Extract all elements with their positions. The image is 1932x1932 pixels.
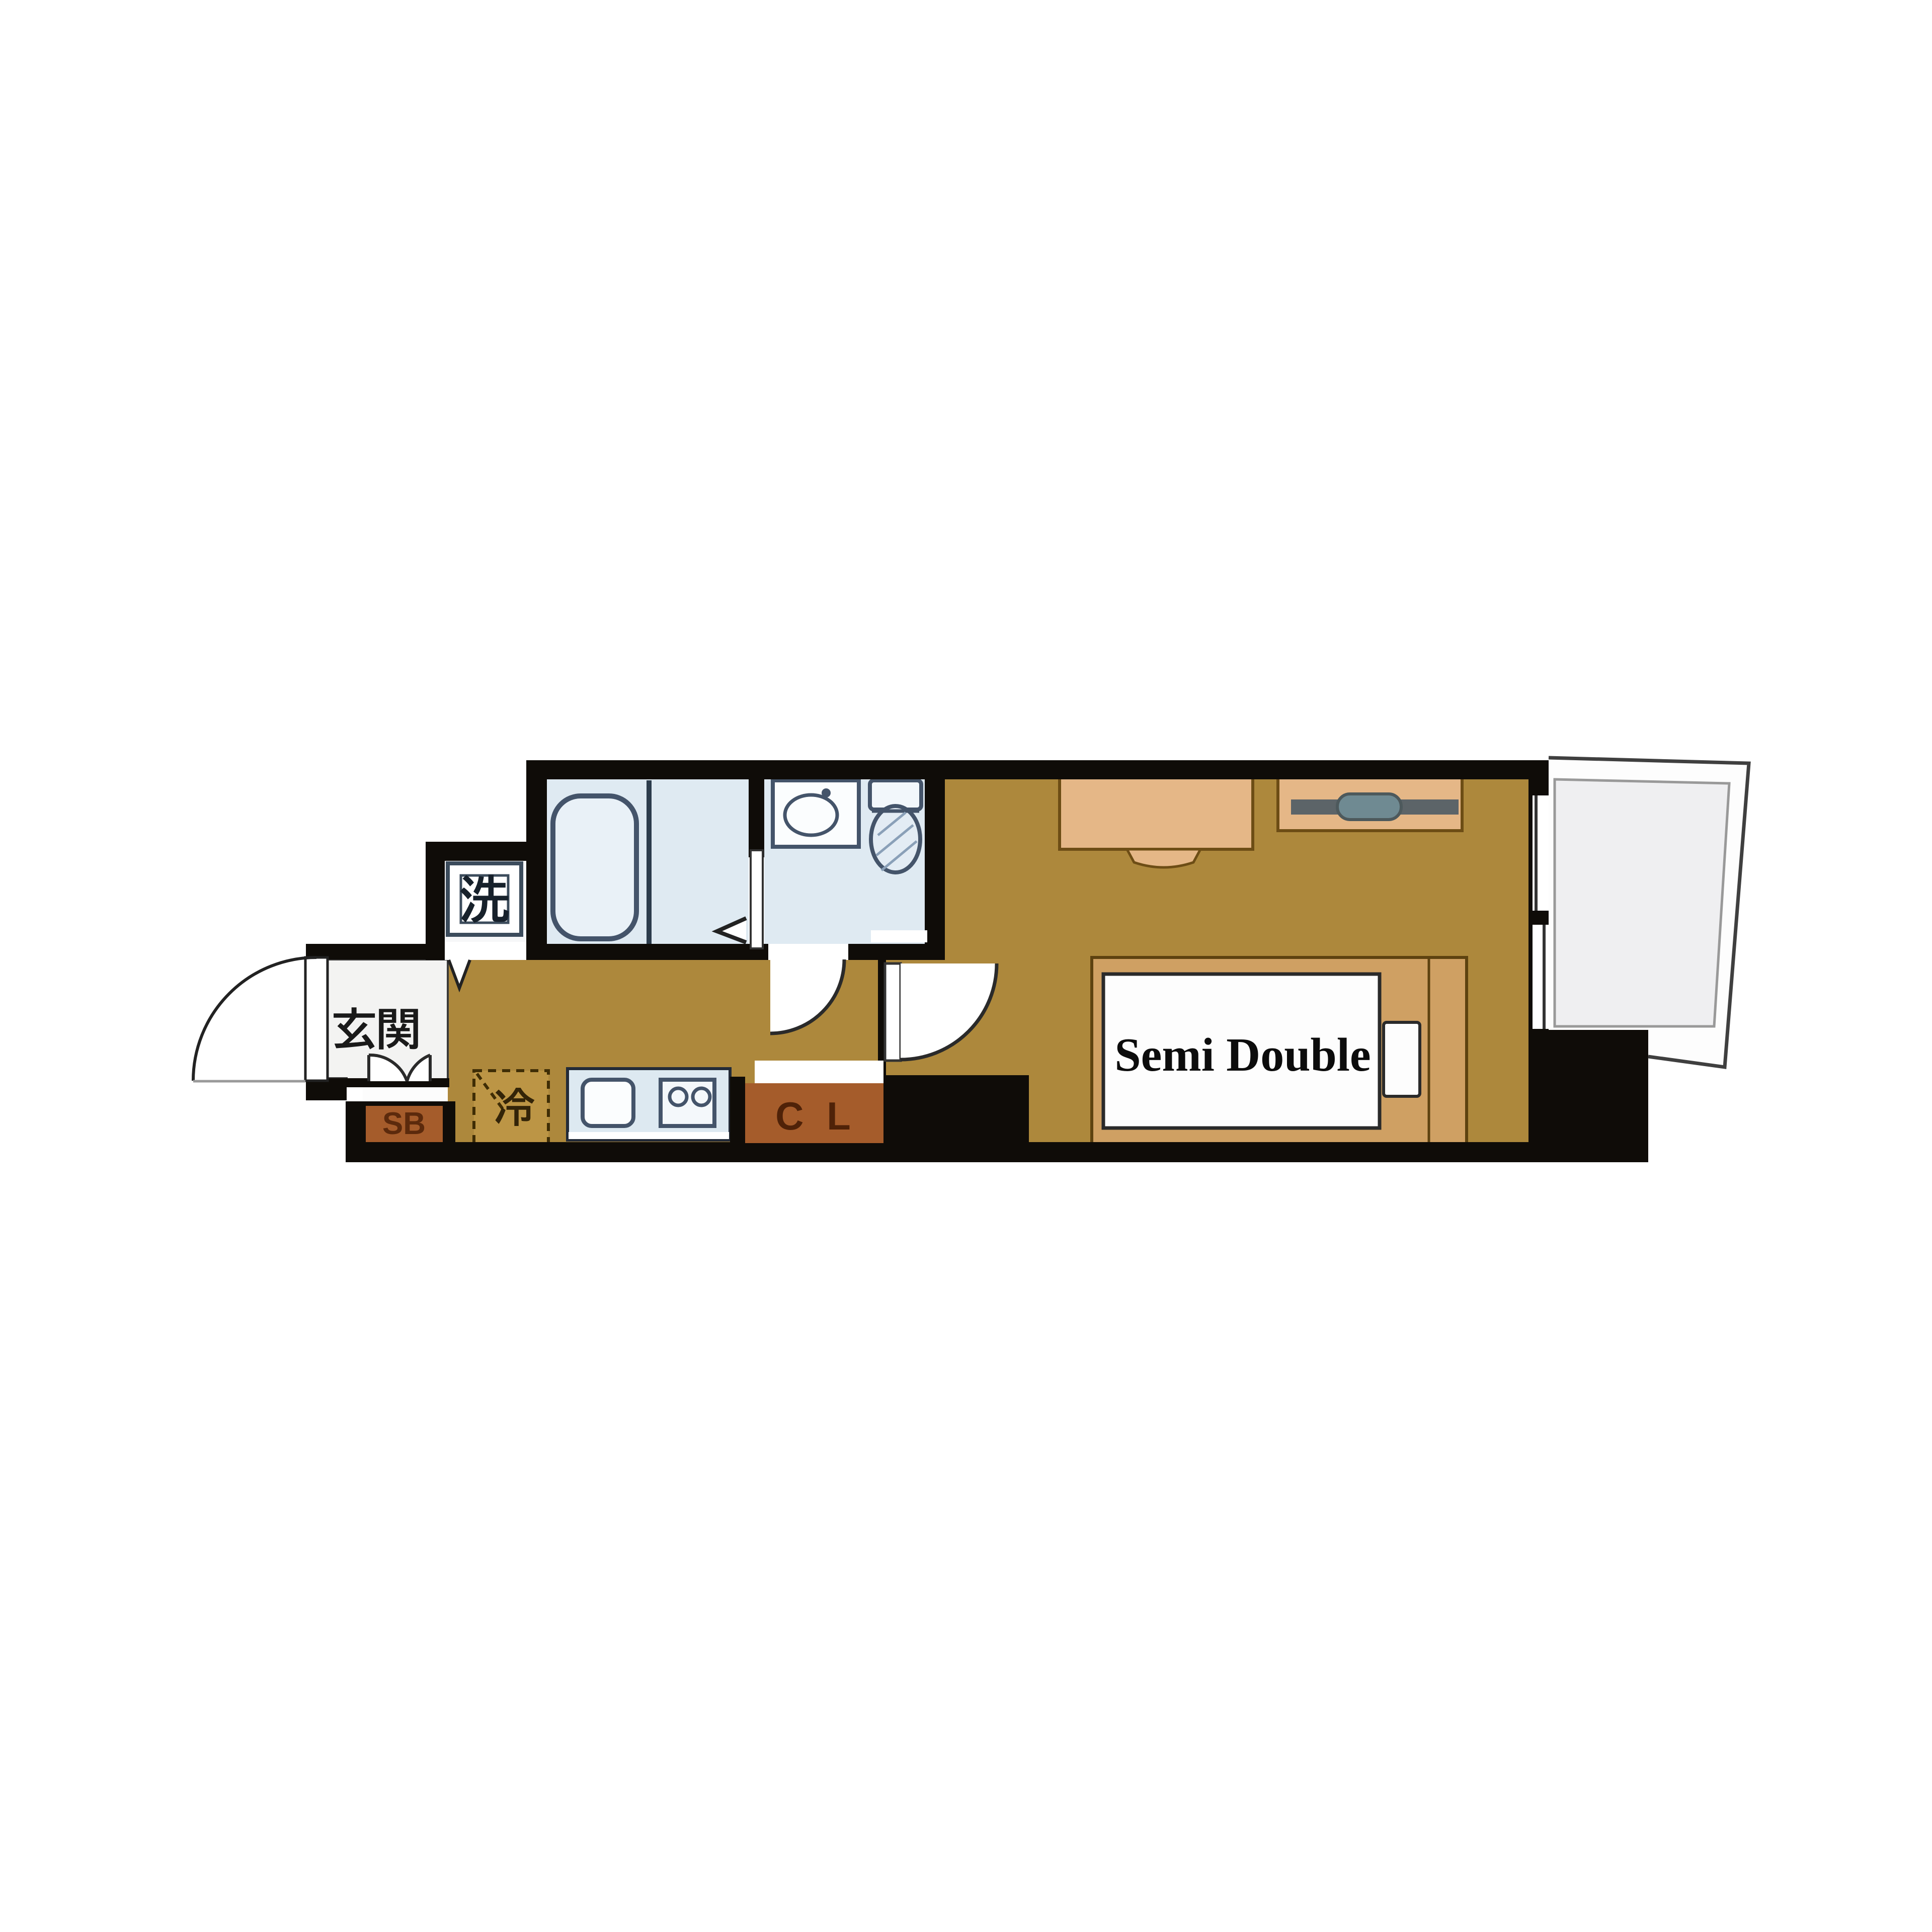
svg-text:SB: SB [382, 1106, 426, 1141]
svg-text:C L: C L [775, 1094, 857, 1138]
svg-text:Semi Double: Semi Double [1114, 1029, 1371, 1081]
